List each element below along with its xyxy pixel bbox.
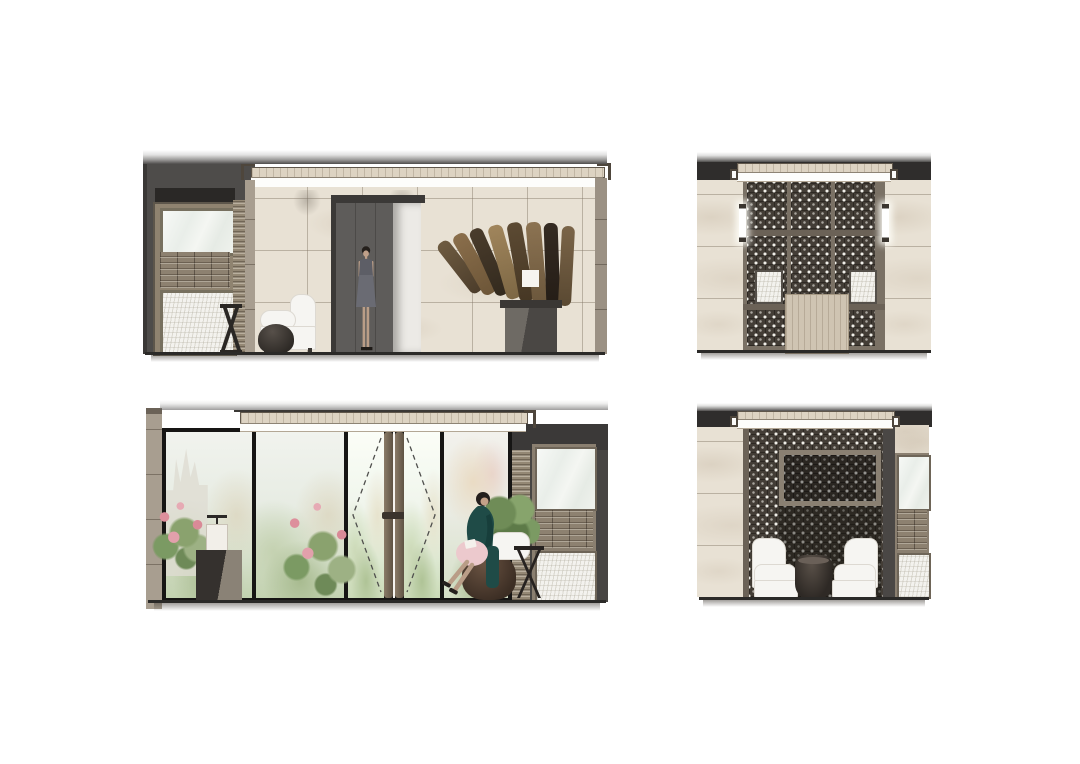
stone-pedestal xyxy=(505,308,557,354)
round-ottoman xyxy=(258,324,294,354)
lattice-panel xyxy=(747,182,787,346)
header-end-bracket xyxy=(524,410,536,428)
door-swing-dashes xyxy=(404,432,440,598)
ceiling-fade xyxy=(697,152,931,162)
millwork-drawers xyxy=(160,252,230,288)
marble-wall-right xyxy=(883,180,931,350)
column-drawers xyxy=(897,510,927,550)
marble-wall-left xyxy=(697,180,745,350)
drum-table-top xyxy=(798,557,829,564)
cove-light-strip xyxy=(737,419,893,429)
marble-pilaster-right xyxy=(595,178,607,354)
floor-shadow xyxy=(703,600,925,607)
wall-sketch-mark xyxy=(293,190,321,216)
chair-skirt xyxy=(832,580,876,598)
millwork-column xyxy=(895,425,929,597)
wood-art-backlit-gap xyxy=(522,270,539,287)
drum-coffee-table xyxy=(795,555,832,600)
wood-art-plank xyxy=(558,226,575,307)
recessed-door xyxy=(331,195,425,354)
ceiling-fade xyxy=(697,403,932,411)
x-base-side-table xyxy=(514,546,544,602)
elevation-sheet xyxy=(0,0,1080,764)
elevation-c-panel xyxy=(146,400,608,612)
marble-wall-left xyxy=(697,427,745,597)
elevation-b-panel xyxy=(697,152,931,360)
cove-end-right xyxy=(892,416,900,427)
millwork-lower-window xyxy=(535,551,597,603)
marble-pilaster-left xyxy=(245,180,255,354)
backlit-window xyxy=(755,270,783,304)
chair-skirt xyxy=(754,580,798,598)
floor-shadow xyxy=(151,355,599,362)
column-lower-window xyxy=(897,553,931,599)
column-window xyxy=(897,455,931,511)
wall-sconce-left xyxy=(739,204,746,242)
backlit-window xyxy=(849,270,877,304)
screen-rail xyxy=(743,230,885,236)
armchair-right xyxy=(830,538,878,600)
dark-pilaster xyxy=(883,425,895,597)
cove-end-left xyxy=(730,416,738,427)
inner-lattice xyxy=(784,455,876,501)
header-light-strip xyxy=(240,423,526,432)
stone-pedestal xyxy=(196,550,242,602)
millwork-upper-window xyxy=(160,208,236,256)
wall-sconce-right xyxy=(882,204,889,242)
floor-shadow xyxy=(701,353,927,360)
door-leaf-glass xyxy=(404,432,440,598)
wood-console xyxy=(785,294,849,354)
cove-end-left xyxy=(730,169,738,180)
millwork-drawers xyxy=(535,510,593,548)
millwork-top-band xyxy=(155,188,235,204)
cove-light-strip xyxy=(737,172,891,182)
flower-arrangement-large xyxy=(274,486,368,602)
pedestal-top xyxy=(500,300,562,308)
cove-end-right xyxy=(890,169,898,180)
door-lintel xyxy=(331,195,425,203)
seated-figure xyxy=(436,490,502,602)
door-recess xyxy=(393,203,421,354)
armchair-left xyxy=(752,538,800,600)
framed-lattice-panel xyxy=(779,450,881,506)
hourglass-side-table xyxy=(219,304,243,354)
standing-figure xyxy=(353,245,379,354)
floor-shadow xyxy=(154,603,600,611)
elevation-a-panel xyxy=(143,150,607,362)
door-pull-hardware xyxy=(382,512,406,519)
ceiling-fade xyxy=(143,150,607,164)
column-marble-top xyxy=(895,425,929,453)
ceiling-fade xyxy=(160,400,608,410)
elevation-d-panel xyxy=(697,403,932,608)
millwork-upper-window xyxy=(535,447,597,511)
wood-art-installation xyxy=(449,220,581,312)
